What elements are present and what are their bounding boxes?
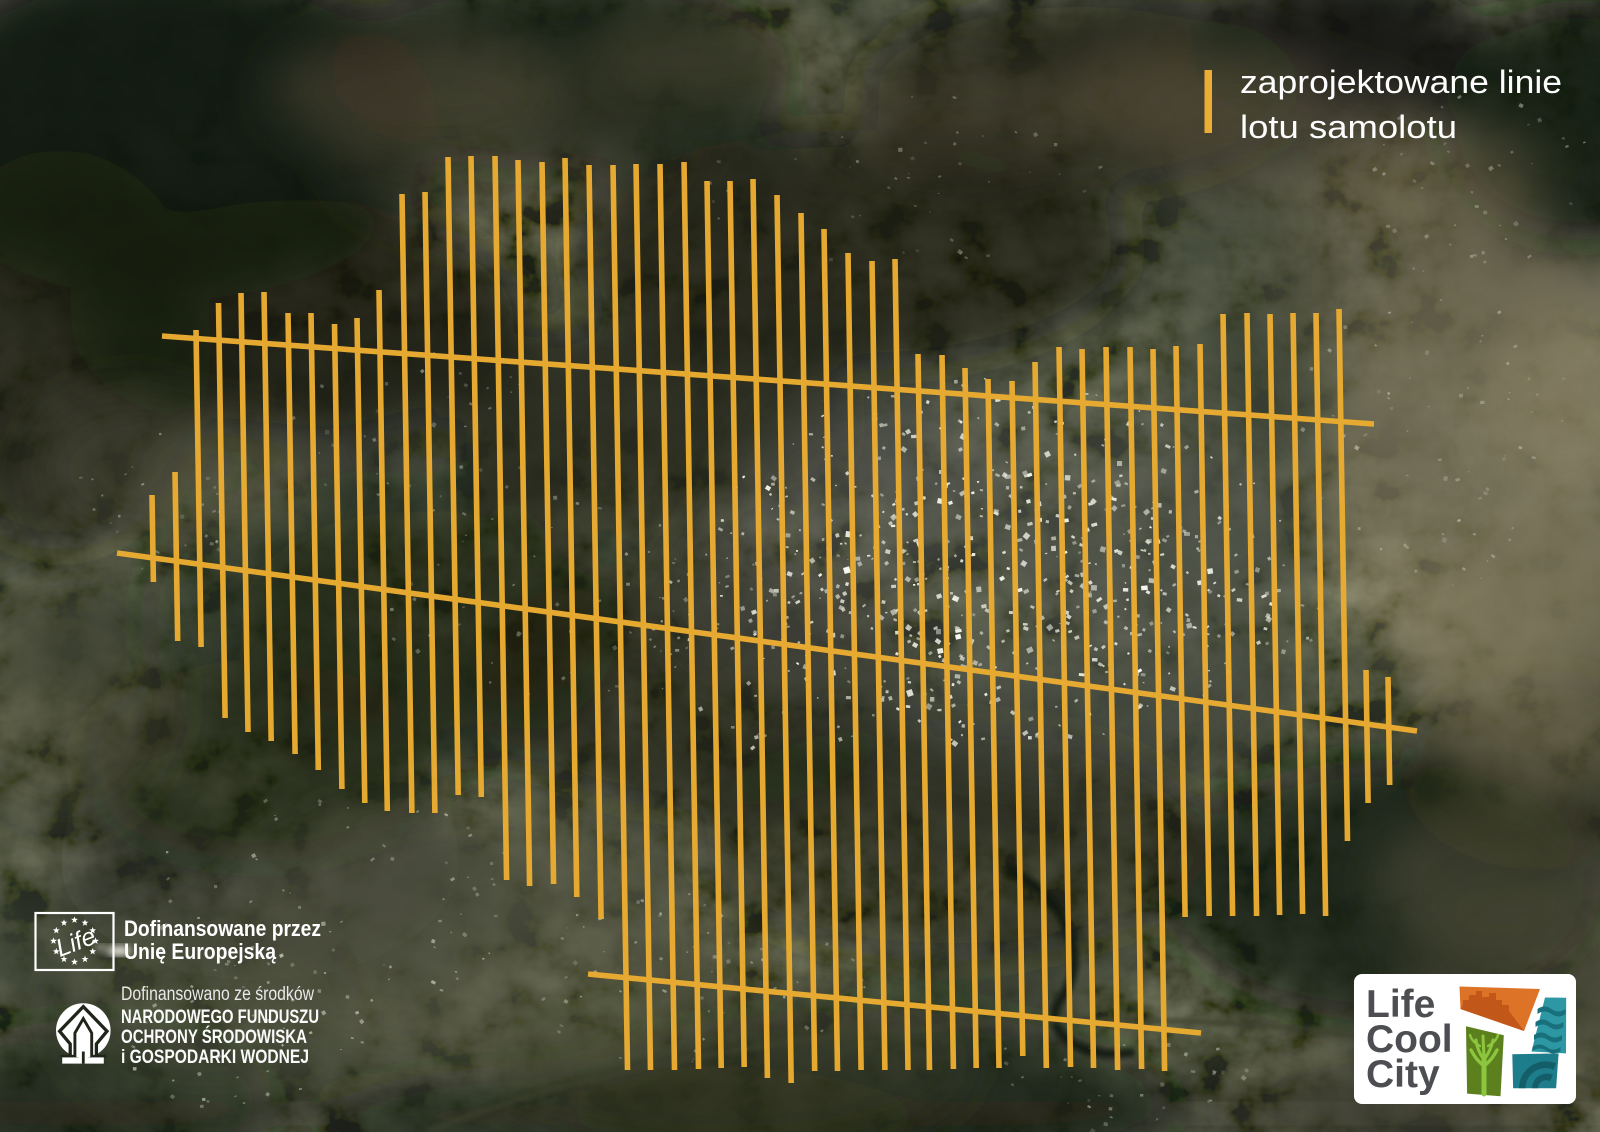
- svg-text:i GOSPODARKI WODNEJ: i GOSPODARKI WODNEJ: [121, 1046, 309, 1068]
- svg-text:Dofinansowane przez: Dofinansowane przez: [124, 916, 321, 941]
- svg-text:Dofinansowano ze środków: Dofinansowano ze środków: [121, 984, 314, 1005]
- svg-text:Unię Europejską: Unię Europejską: [124, 939, 277, 964]
- svg-text:City: City: [1366, 1053, 1440, 1096]
- svg-text:zaprojektowane linie: zaprojektowane linie: [1240, 64, 1562, 100]
- svg-text:OCHRONY ŚRODOWISKA: OCHRONY ŚRODOWISKA: [121, 1024, 307, 1048]
- svg-text:lotu samolotu: lotu samolotu: [1240, 109, 1457, 145]
- svg-text:NARODOWEGO FUNDUSZU: NARODOWEGO FUNDUSZU: [121, 1006, 319, 1028]
